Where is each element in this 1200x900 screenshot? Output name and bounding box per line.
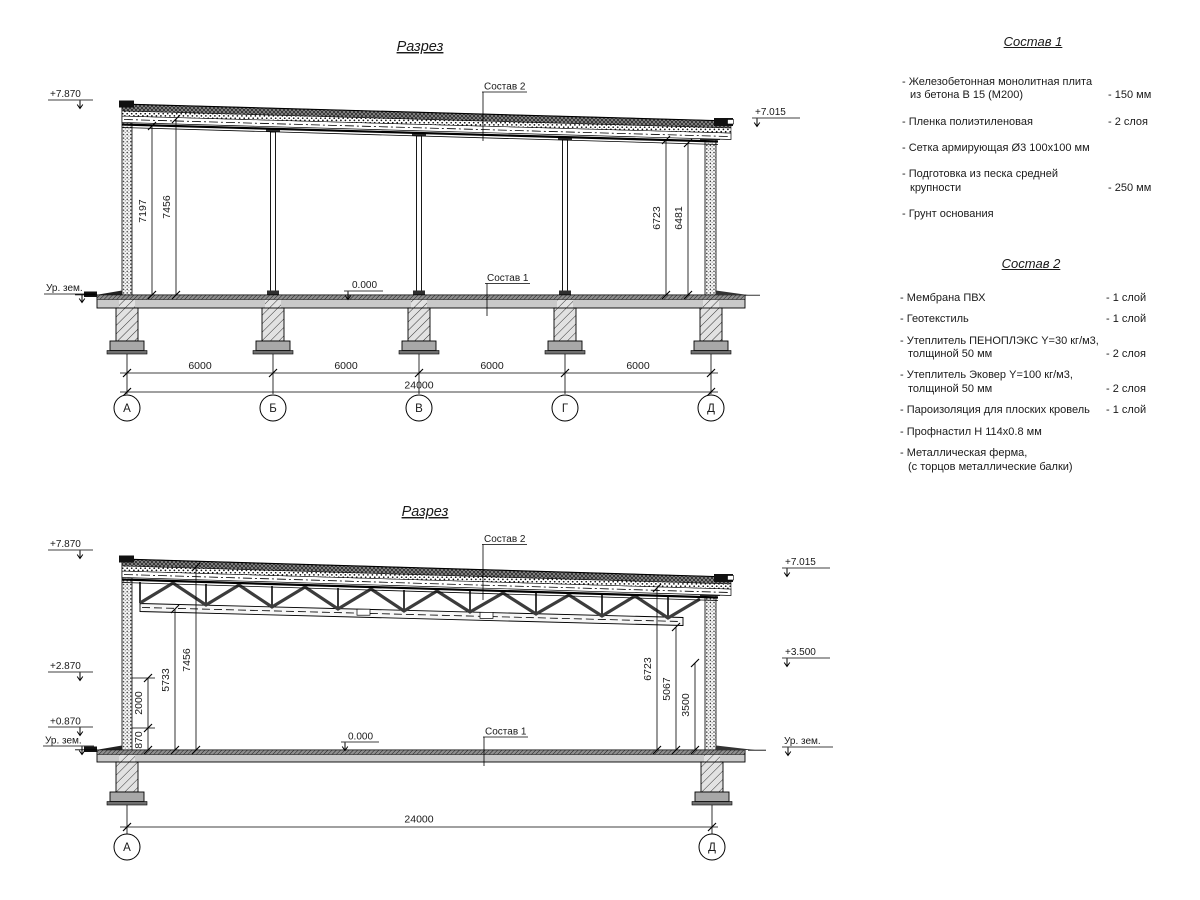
foundations	[107, 762, 732, 805]
elev-7870: +7.870	[50, 89, 81, 100]
axis-b: Б	[269, 403, 277, 415]
layer-callouts: Состав 2 Состав 1	[482, 534, 528, 766]
roof-package	[119, 101, 734, 145]
spec-item-value: - 1 слой	[1106, 313, 1162, 326]
spec-item: - Пароизоляция для плоских кровель - 1 с…	[900, 404, 1162, 417]
spec-item-name: - Металлическая ферма, (с торцов металли…	[900, 447, 1106, 474]
elev-3500: +3.500	[785, 647, 816, 658]
zero-level-label: 0.000	[352, 280, 377, 291]
spec1-title: Состав 1	[902, 34, 1164, 50]
roof-package	[119, 556, 734, 601]
floor-slab	[75, 746, 766, 763]
spec-item: - Профнастил Н 114х0.8 мм	[900, 426, 1162, 439]
spec-item-value: - 150 мм	[1108, 89, 1164, 102]
spec-item: - Железобетонная монолитная плита из бет…	[902, 76, 1164, 103]
horizontal-dimensions: 24000	[120, 805, 718, 834]
column-axis-b	[266, 129, 280, 296]
dim-24000: 24000	[404, 380, 433, 392]
axis-v: В	[415, 403, 423, 415]
elev-7015: +7.015	[755, 107, 786, 118]
spec-item: - Подготовка из песка средней крупности …	[902, 168, 1164, 195]
spec-sostav1: Состав 1 - Железобетонная монолитная пли…	[902, 34, 1164, 235]
spec-item-name: - Геотекстиль	[900, 313, 1106, 326]
callout-sostav2: Состав 2	[484, 534, 526, 545]
axis-d: Д	[708, 842, 716, 854]
dim-2000: 2000	[133, 691, 145, 715]
spec-item: - Грунт основания	[902, 208, 1164, 221]
dim-870: 870	[133, 731, 145, 749]
elev-7015: +7.015	[785, 557, 816, 568]
sections-svg: Разрез	[0, 0, 880, 900]
dim-5733: 5733	[160, 668, 172, 692]
callout-sostav2: Состав 2	[484, 82, 526, 93]
axis-bubbles: А Б В Г Д	[114, 395, 724, 421]
spec-item-value: - 250 мм	[1108, 182, 1164, 195]
section1-drawing: Разрез	[44, 39, 800, 421]
dim-6723: 6723	[642, 657, 654, 681]
foundations	[107, 308, 731, 354]
vertical-dimensions: 7197 7456 6723 6481	[137, 115, 692, 299]
spec-item-name: - Грунт основания	[902, 208, 1108, 221]
spec-item-value: - 1 слой	[1106, 292, 1162, 305]
spec-item-value: - 2 слоя	[1108, 116, 1164, 129]
spec-item: - Геотекстиль - 1 слой	[900, 313, 1162, 326]
dim-6000-2: 6000	[334, 360, 358, 372]
spec-item: - Металлическая ферма, (с торцов металли…	[900, 447, 1162, 474]
spec-item: - Утеплитель Эковер Y=100 кг/м3, толщино…	[900, 369, 1162, 396]
axis-d: Д	[707, 403, 715, 415]
section1-title: Разрез	[397, 39, 444, 55]
dim-6723: 6723	[651, 206, 663, 230]
spec-item-name: - Мембрана ПВХ	[900, 292, 1106, 305]
ground-level-right: Ур. зем.	[784, 736, 821, 747]
spec-item-name: - Сетка армирующая Ø3 100х100 мм	[902, 142, 1108, 155]
dim-5067: 5067	[661, 677, 673, 701]
elev-2870: +2.870	[50, 661, 81, 672]
wall-left	[122, 558, 132, 750]
dim-24000: 24000	[404, 814, 433, 826]
callout-sostav1: Состав 1	[487, 273, 529, 284]
spec-item: - Утеплитель ПЕНОПЛЭКС Y=30 кг/м3, толщи…	[900, 335, 1162, 362]
elev-0870: +0.870	[50, 717, 81, 728]
wall-right	[705, 124, 716, 295]
spec-item-name: - Пленка полиэтиленовая	[902, 116, 1108, 129]
spec-item-name: - Пароизоляция для плоских кровель	[900, 404, 1106, 417]
spec-item-name: - Железобетонная монолитная плита из бет…	[902, 76, 1108, 103]
ground-level-label: Ур. зем.	[46, 283, 83, 294]
axis-g: Г	[562, 403, 569, 415]
spec-item-value: - 2 слоя	[1106, 348, 1162, 361]
column-axis-g	[558, 137, 572, 296]
dim-7197: 7197	[137, 199, 149, 223]
spec-sostav2: Состав 2 - Мембрана ПВХ - 1 слой - Геоте…	[900, 256, 1162, 482]
technical-drawing-canvas: Разрез	[0, 0, 880, 900]
dim-3500: 3500	[680, 693, 692, 717]
spec-item: - Мембрана ПВХ - 1 слой	[900, 292, 1162, 305]
column-axis-v	[412, 133, 426, 296]
spec-item: - Пленка полиэтиленовая - 2 слоя	[902, 116, 1164, 129]
spec-item-value: - 1 слой	[1106, 404, 1162, 417]
section2-title: Разрез	[402, 504, 449, 520]
section2-drawing: Разрез	[43, 504, 833, 860]
wall-right	[705, 579, 716, 750]
zero-level-label: 0.000	[348, 732, 373, 743]
spec-item-value: - 2 слоя	[1106, 383, 1162, 396]
ground-level-left: Ур. зем.	[45, 736, 82, 747]
spec-item-name: - Профнастил Н 114х0.8 мм	[900, 426, 1106, 439]
dim-6000-3: 6000	[480, 360, 504, 372]
axis-bubbles: А Д	[114, 834, 725, 860]
callout-sostav1: Состав 1	[485, 727, 527, 738]
dim-6000-4: 6000	[626, 360, 650, 372]
spec-item-name: - Утеплитель ПЕНОПЛЭКС Y=30 кг/м3, толщи…	[900, 335, 1106, 362]
drawing-sheet: { "s1": { "title": "Разрез", "elev_left"…	[0, 0, 1200, 900]
elev-7870: +7.870	[50, 539, 81, 550]
dim-7456: 7456	[161, 195, 173, 219]
spec2-title: Состав 2	[900, 256, 1162, 272]
dim-6481: 6481	[673, 206, 685, 230]
horizontal-dimensions: 6000 6000 6000 6000 24000	[120, 354, 718, 396]
axis-a: А	[123, 403, 131, 415]
dim-7456: 7456	[181, 648, 193, 672]
spec-item-name: - Утеплитель Эковер Y=100 кг/м3, толщино…	[900, 369, 1106, 396]
dim-6000-1: 6000	[188, 360, 212, 372]
axis-a: А	[123, 842, 131, 854]
spec-item: - Сетка армирующая Ø3 100х100 мм	[902, 142, 1164, 155]
wall-left	[122, 104, 132, 295]
spec-item-name: - Подготовка из песка средней крупности	[902, 168, 1108, 195]
